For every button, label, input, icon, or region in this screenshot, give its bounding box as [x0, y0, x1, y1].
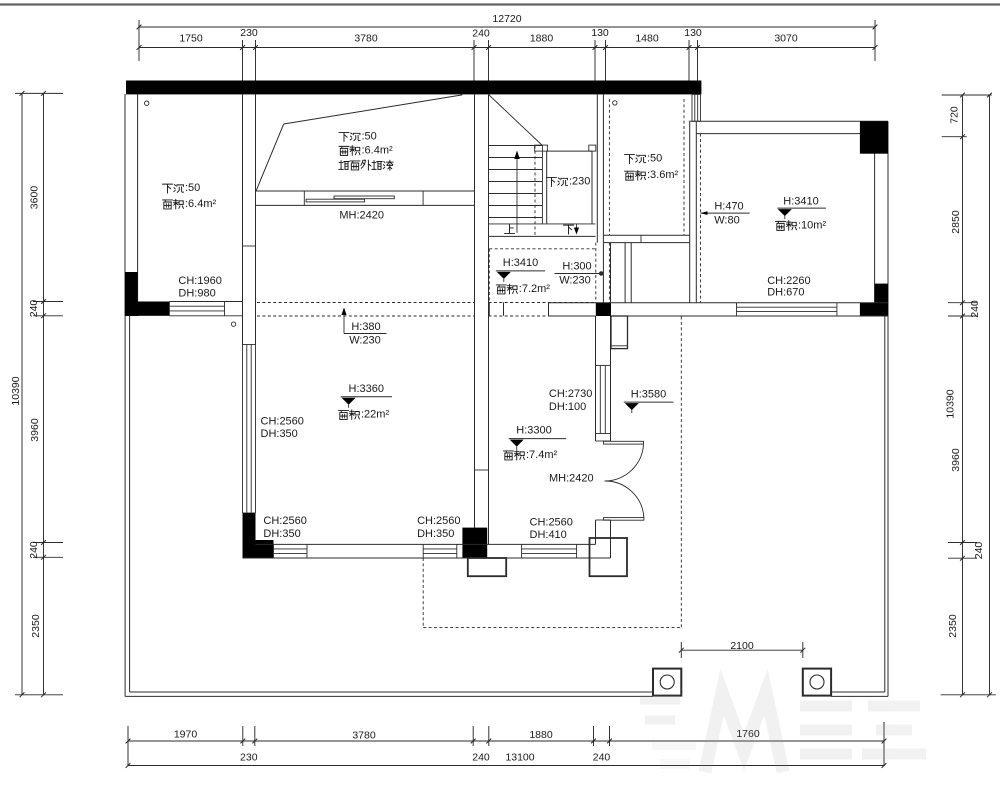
svg-text:720: 720 — [949, 106, 961, 124]
svg-text:CH:2560: CH:2560 — [417, 515, 460, 527]
svg-text::50: :50 — [362, 130, 377, 142]
svg-text:CH:2260: CH:2260 — [767, 275, 810, 287]
svg-text:DH:350: DH:350 — [261, 428, 298, 440]
svg-text:230: 230 — [240, 27, 258, 39]
svg-text:CH:2560: CH:2560 — [530, 516, 573, 528]
svg-text:12720: 12720 — [492, 13, 521, 25]
svg-text:1970: 1970 — [174, 729, 198, 741]
svg-text:3780: 3780 — [354, 33, 378, 45]
svg-text:10390: 10390 — [945, 389, 957, 418]
svg-text:240: 240 — [973, 542, 985, 560]
svg-text:3960: 3960 — [29, 418, 41, 442]
svg-text::22m²: :22m² — [361, 409, 389, 421]
svg-text:240: 240 — [969, 300, 981, 318]
svg-text:1750: 1750 — [179, 33, 203, 45]
svg-text:240: 240 — [593, 752, 611, 764]
svg-text:H:3360: H:3360 — [349, 383, 384, 395]
svg-text:H:3410: H:3410 — [783, 196, 818, 208]
svg-text:H:300: H:300 — [562, 261, 591, 273]
svg-text:DH:670: DH:670 — [767, 287, 804, 299]
svg-text::230: :230 — [569, 175, 590, 187]
svg-text:CH:1960: CH:1960 — [178, 275, 221, 287]
svg-text:240: 240 — [28, 300, 40, 318]
svg-text:240: 240 — [28, 541, 40, 559]
svg-text:240: 240 — [472, 752, 490, 764]
svg-text::10m²: :10m² — [798, 219, 826, 231]
svg-text:10390: 10390 — [10, 376, 22, 405]
svg-text:13100: 13100 — [505, 752, 534, 764]
svg-text:130: 130 — [591, 27, 609, 39]
svg-text:2850: 2850 — [950, 210, 962, 234]
svg-text:3780: 3780 — [352, 730, 376, 742]
svg-text:H:3410: H:3410 — [503, 257, 538, 269]
svg-text:3600: 3600 — [29, 186, 41, 210]
svg-text:H:380: H:380 — [351, 321, 380, 333]
svg-text:3070: 3070 — [774, 33, 798, 45]
svg-text:CH:2730: CH:2730 — [549, 388, 592, 400]
svg-text:MH:2420: MH:2420 — [549, 473, 594, 485]
svg-text:W:230: W:230 — [559, 275, 591, 287]
svg-text:DH:980: DH:980 — [178, 288, 215, 300]
svg-text::3.6m²: :3.6m² — [647, 169, 679, 181]
svg-text::7.2m²: :7.2m² — [519, 283, 551, 295]
svg-text::50: :50 — [647, 152, 662, 164]
svg-text:DH:350: DH:350 — [263, 528, 300, 540]
svg-text:DH:410: DH:410 — [530, 529, 567, 541]
svg-text::50: :50 — [185, 182, 200, 194]
svg-text:DH:350: DH:350 — [417, 528, 454, 540]
svg-text:2100: 2100 — [730, 640, 754, 652]
svg-text:230: 230 — [240, 752, 258, 764]
svg-text:CH:2560: CH:2560 — [261, 416, 304, 428]
svg-text::7.4m²: :7.4m² — [526, 449, 558, 461]
svg-text:1480: 1480 — [635, 33, 659, 45]
svg-text:DH:100: DH:100 — [549, 401, 586, 413]
svg-text:3960: 3960 — [950, 448, 962, 472]
svg-text:130: 130 — [684, 27, 702, 39]
svg-text:MH:2420: MH:2420 — [339, 210, 384, 222]
svg-text:W:230: W:230 — [349, 335, 381, 347]
svg-text:1880: 1880 — [530, 33, 554, 45]
svg-text:2350: 2350 — [947, 614, 959, 638]
svg-text:2350: 2350 — [30, 614, 42, 638]
svg-text:240: 240 — [472, 28, 490, 40]
svg-text:W:80: W:80 — [714, 215, 739, 227]
svg-text:CH:2560: CH:2560 — [263, 515, 306, 527]
svg-text::6.4m²: :6.4m² — [362, 144, 394, 156]
svg-text::6.4m²: :6.4m² — [185, 198, 217, 210]
svg-text:1880: 1880 — [529, 729, 553, 741]
svg-text:H:3580: H:3580 — [631, 389, 666, 401]
svg-text:H:470: H:470 — [714, 201, 743, 213]
svg-text:H:3300: H:3300 — [516, 425, 551, 437]
